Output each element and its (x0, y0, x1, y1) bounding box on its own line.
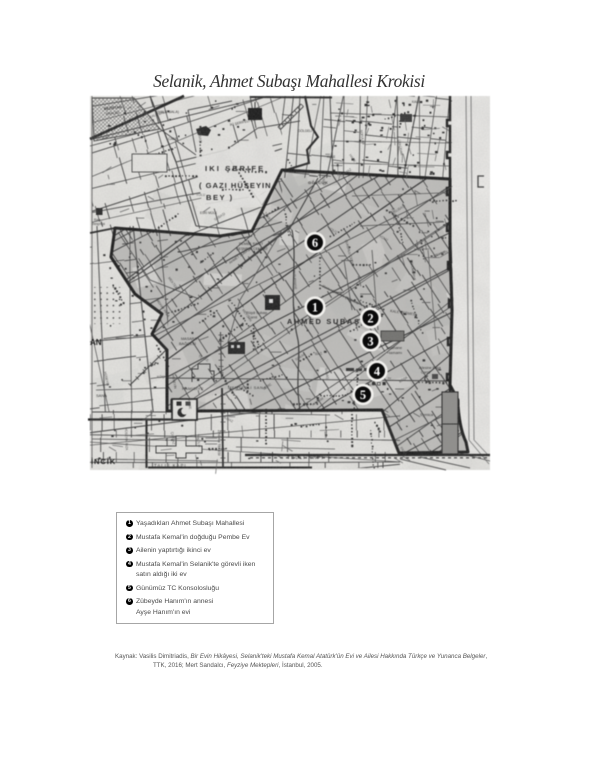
svg-text:6: 6 (312, 236, 318, 250)
svg-text:4: 4 (374, 364, 381, 378)
svg-text:3: 3 (367, 334, 373, 348)
svg-text:2: 2 (367, 311, 373, 325)
svg-text:1: 1 (312, 300, 318, 314)
svg-text:5: 5 (360, 388, 366, 402)
